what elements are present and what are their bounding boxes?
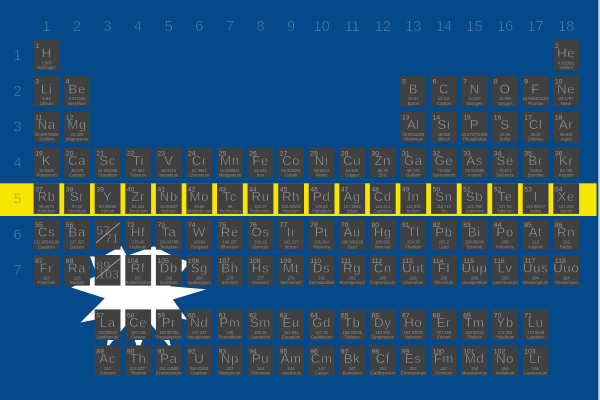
- svg-text:In: In: [407, 189, 419, 204]
- svg-text:Beryllium: Beryllium: [68, 101, 86, 106]
- svg-text:18: 18: [558, 19, 574, 35]
- svg-text:5: 5: [13, 192, 21, 208]
- svg-text:8: 8: [256, 19, 264, 35]
- svg-text:Ca: Ca: [68, 153, 86, 168]
- svg-text:Helium: Helium: [560, 65, 574, 70]
- svg-text:Cl: Cl: [529, 117, 543, 132]
- svg-text:Uup: Uup: [462, 261, 488, 276]
- svg-text:3: 3: [104, 19, 112, 35]
- svg-text:Nb: Nb: [160, 189, 178, 204]
- svg-text:Erbium: Erbium: [437, 335, 451, 340]
- svg-text:Barium: Barium: [70, 244, 84, 249]
- svg-text:Cn: Cn: [374, 261, 392, 276]
- svg-text:Chromium: Chromium: [189, 173, 209, 178]
- svg-text:No: No: [496, 351, 514, 366]
- svg-text:Roentgenium: Roentgenium: [339, 280, 365, 285]
- svg-text:Thallium: Thallium: [405, 244, 422, 249]
- svg-text:6: 6: [13, 227, 21, 243]
- svg-text:Scandium: Scandium: [98, 173, 118, 178]
- svg-text:Technetium: Technetium: [219, 209, 241, 214]
- svg-text:Rh: Rh: [282, 189, 300, 204]
- svg-text:Dysprosium: Dysprosium: [371, 335, 394, 340]
- svg-text:Cs: Cs: [38, 225, 55, 240]
- svg-text:5: 5: [165, 19, 173, 35]
- svg-text:Caesium: Caesium: [38, 244, 55, 249]
- svg-text:Sm: Sm: [250, 315, 271, 330]
- svg-text:Chlorine: Chlorine: [528, 137, 545, 142]
- svg-text:C: C: [439, 81, 449, 96]
- svg-text:Strontium: Strontium: [68, 209, 87, 214]
- svg-text:Np: Np: [221, 351, 239, 366]
- svg-text:Fm: Fm: [434, 351, 454, 366]
- svg-text:Bohrium: Bohrium: [222, 280, 238, 285]
- svg-text:Pb: Pb: [435, 225, 452, 240]
- svg-text:Tm: Tm: [464, 315, 484, 330]
- svg-text:Pd: Pd: [313, 189, 330, 204]
- svg-text:13: 13: [405, 19, 421, 35]
- svg-text:Radon: Radon: [560, 244, 573, 249]
- svg-text:15: 15: [466, 19, 482, 35]
- svg-text:Hs: Hs: [252, 261, 269, 276]
- svg-text:Uuo: Uuo: [553, 261, 579, 276]
- svg-text:Hg: Hg: [374, 225, 392, 240]
- svg-text:2: 2: [13, 84, 21, 100]
- svg-text:Lithium: Lithium: [40, 101, 54, 106]
- svg-text:Fe: Fe: [252, 153, 269, 168]
- svg-text:6: 6: [433, 79, 437, 86]
- svg-text:Cf: Cf: [376, 351, 390, 366]
- svg-text:Rg: Rg: [343, 261, 361, 276]
- svg-text:Terbium: Terbium: [345, 335, 361, 340]
- svg-text:Iridium: Iridium: [285, 244, 298, 249]
- svg-text:Oxygen: Oxygen: [498, 101, 513, 106]
- svg-text:O: O: [500, 81, 511, 96]
- svg-text:Fermium: Fermium: [435, 371, 452, 376]
- svg-text:Nd: Nd: [190, 315, 208, 330]
- svg-text:Gold: Gold: [348, 244, 358, 249]
- svg-text:Os: Os: [251, 225, 269, 240]
- svg-text:Nitrogen: Nitrogen: [466, 101, 483, 106]
- svg-text:11: 11: [345, 19, 360, 35]
- svg-text:Boron: Boron: [408, 101, 420, 106]
- svg-text:Potassium: Potassium: [36, 173, 56, 178]
- svg-text:Zinc: Zinc: [379, 173, 388, 178]
- svg-text:Arsenic: Arsenic: [467, 173, 482, 178]
- svg-text:Antimony: Antimony: [466, 209, 485, 214]
- svg-text:Ruthenium: Ruthenium: [250, 209, 271, 214]
- svg-text:Europium: Europium: [282, 335, 301, 340]
- svg-text:Berkelium: Berkelium: [343, 371, 363, 376]
- svg-text:Argon: Argon: [560, 137, 572, 142]
- svg-text:Te: Te: [498, 189, 513, 204]
- svg-text:Ra: Ra: [68, 261, 86, 276]
- svg-text:Rn: Rn: [557, 225, 575, 240]
- svg-text:Rf: Rf: [131, 261, 145, 276]
- svg-text:As: As: [466, 153, 483, 168]
- svg-text:Pa: Pa: [160, 351, 177, 366]
- svg-text:Pt: Pt: [315, 225, 329, 240]
- svg-text:5: 5: [402, 79, 406, 86]
- svg-text:Hydrogen: Hydrogen: [37, 65, 56, 70]
- svg-text:Bromine: Bromine: [528, 173, 545, 178]
- svg-text:Na: Na: [37, 117, 55, 132]
- svg-text:Californium: Californium: [370, 371, 396, 376]
- svg-text:Si: Si: [437, 117, 450, 132]
- svg-text:Pu: Pu: [252, 351, 269, 366]
- svg-text:Sg: Sg: [191, 261, 208, 276]
- svg-text:Rb: Rb: [37, 189, 55, 204]
- svg-text:Polonium: Polonium: [496, 244, 514, 249]
- svg-text:Br: Br: [528, 153, 542, 168]
- svg-text:Molybdenum: Molybdenum: [187, 209, 212, 214]
- svg-text:Mt: Mt: [283, 261, 299, 276]
- svg-text:Fl: Fl: [438, 261, 450, 276]
- svg-text:Praseodymium: Praseodymium: [156, 335, 182, 340]
- svg-text:Xenon: Xenon: [560, 209, 573, 214]
- svg-text:Ag: Ag: [344, 189, 361, 204]
- svg-text:Osmium: Osmium: [253, 244, 269, 249]
- svg-text:Neon: Neon: [561, 101, 572, 106]
- svg-text:7: 7: [463, 79, 467, 86]
- svg-text:Cu: Cu: [343, 153, 361, 168]
- svg-text:Tantalum: Tantalum: [160, 244, 178, 249]
- svg-text:Einsteinium: Einsteinium: [401, 371, 427, 376]
- svg-text:7: 7: [226, 19, 234, 35]
- svg-text:Pr: Pr: [162, 315, 176, 330]
- svg-text:Seaborgium: Seaborgium: [188, 280, 212, 285]
- svg-text:Aluminium: Aluminium: [403, 137, 423, 142]
- svg-text:Cd: Cd: [374, 189, 392, 204]
- svg-text:Dy: Dy: [374, 315, 391, 330]
- svg-text:Lr: Lr: [529, 351, 542, 366]
- svg-text:Se: Se: [496, 153, 513, 168]
- svg-text:H: H: [41, 45, 51, 60]
- svg-text:Tellurium: Tellurium: [496, 209, 514, 214]
- svg-text:Iron: Iron: [257, 173, 265, 178]
- svg-text:Zn: Zn: [375, 153, 392, 168]
- svg-text:1: 1: [42, 19, 50, 35]
- svg-text:Sn: Sn: [435, 189, 452, 204]
- svg-text:Mg: Mg: [67, 117, 87, 132]
- svg-text:Uus: Uus: [523, 261, 548, 276]
- svg-text:Holmium: Holmium: [405, 335, 422, 340]
- svg-text:S: S: [500, 117, 509, 132]
- svg-text:V: V: [164, 153, 173, 168]
- svg-text:Fr: Fr: [40, 261, 54, 276]
- svg-text:Ge: Ge: [435, 153, 454, 168]
- svg-text:Manganese: Manganese: [219, 173, 242, 178]
- svg-text:Ytterbium: Ytterbium: [496, 335, 515, 340]
- svg-text:Niobium: Niobium: [161, 209, 177, 214]
- svg-text:Tb: Tb: [344, 315, 361, 330]
- svg-text:Bk: Bk: [344, 351, 361, 366]
- svg-text:Protactinium: Protactinium: [156, 371, 182, 376]
- svg-text:Hafnium: Hafnium: [130, 244, 146, 249]
- svg-text:Ga: Ga: [404, 153, 423, 168]
- svg-text:Cadmium: Cadmium: [374, 209, 393, 214]
- svg-text:Promethium: Promethium: [218, 335, 242, 340]
- svg-text:Rhenium: Rhenium: [221, 244, 239, 249]
- svg-text:Kr: Kr: [559, 153, 573, 168]
- svg-text:9: 9: [287, 19, 295, 35]
- svg-text:W: W: [193, 225, 206, 240]
- svg-text:Ce: Ce: [129, 315, 147, 330]
- svg-text:Ac: Ac: [99, 351, 116, 366]
- svg-text:I: I: [533, 189, 537, 204]
- svg-text:P: P: [470, 117, 479, 132]
- svg-text:4: 4: [134, 19, 142, 35]
- svg-text:12: 12: [375, 19, 391, 35]
- svg-text:53: 53: [524, 186, 532, 193]
- svg-text:Tungsten: Tungsten: [190, 244, 208, 249]
- svg-text:Hf: Hf: [131, 225, 145, 240]
- svg-text:Dubnium: Dubnium: [160, 280, 178, 285]
- svg-text:Cm: Cm: [311, 351, 333, 366]
- svg-text:Tin: Tin: [441, 209, 447, 214]
- svg-text:Am: Am: [281, 351, 302, 366]
- svg-text:Ununpentium: Ununpentium: [462, 280, 488, 285]
- svg-text:Bi: Bi: [468, 225, 481, 240]
- svg-text:Lu: Lu: [528, 315, 544, 330]
- svg-text:Ru: Ru: [251, 189, 269, 204]
- svg-text:6: 6: [195, 19, 203, 35]
- svg-text:Sodium: Sodium: [39, 137, 54, 142]
- svg-text:Darmstadtium: Darmstadtium: [309, 280, 335, 285]
- svg-text:Hassium: Hassium: [252, 280, 269, 285]
- svg-text:Astatine: Astatine: [528, 244, 544, 249]
- svg-text:Lead: Lead: [439, 244, 449, 249]
- svg-text:Db: Db: [160, 261, 178, 276]
- svg-text:Mo: Mo: [190, 189, 210, 204]
- svg-text:Lawrencium: Lawrencium: [524, 371, 548, 376]
- svg-text:Samarium: Samarium: [251, 335, 271, 340]
- svg-text:Silicon: Silicon: [438, 137, 451, 142]
- svg-text:7: 7: [13, 263, 21, 279]
- svg-text:Flerovium: Flerovium: [434, 280, 453, 285]
- svg-text:Co: Co: [282, 153, 300, 168]
- svg-text:3: 3: [13, 120, 21, 136]
- svg-text:Neptunium: Neptunium: [220, 371, 241, 376]
- svg-text:N: N: [469, 81, 479, 96]
- svg-text:2: 2: [73, 19, 81, 35]
- svg-text:Tl: Tl: [407, 225, 419, 240]
- svg-text:Gallium: Gallium: [406, 173, 421, 178]
- svg-text:Francium: Francium: [38, 280, 56, 285]
- svg-text:At: At: [529, 225, 543, 240]
- svg-text:Mendelevium: Mendelevium: [462, 371, 488, 376]
- svg-text:Nobelium: Nobelium: [496, 371, 515, 376]
- svg-text:Ds: Ds: [313, 261, 330, 276]
- svg-text:Mn: Mn: [220, 153, 240, 168]
- svg-text:F: F: [531, 81, 540, 96]
- svg-text:Bismuth: Bismuth: [467, 244, 483, 249]
- svg-text:Ne: Ne: [557, 81, 575, 96]
- svg-text:Thulium: Thulium: [467, 335, 483, 340]
- svg-text:Calcium: Calcium: [69, 173, 85, 178]
- svg-text:Titanium: Titanium: [130, 173, 147, 178]
- svg-text:Th: Th: [130, 351, 147, 366]
- svg-text:Cobalt: Cobalt: [285, 173, 298, 178]
- svg-text:Cerium: Cerium: [131, 335, 145, 340]
- svg-text:Thorium: Thorium: [130, 371, 146, 376]
- svg-text:Rhodium: Rhodium: [282, 209, 300, 214]
- svg-text:Uut: Uut: [402, 261, 424, 276]
- svg-text:Er: Er: [437, 315, 451, 330]
- svg-text:Platinum: Platinum: [313, 244, 330, 249]
- svg-text:Copernicium: Copernicium: [370, 280, 396, 285]
- svg-text:Lutetium: Lutetium: [527, 335, 544, 340]
- svg-text:Iodine: Iodine: [530, 209, 542, 214]
- svg-text:Sulfur: Sulfur: [499, 137, 511, 142]
- svg-text:Indium: Indium: [407, 209, 420, 214]
- svg-text:Ta: Ta: [161, 225, 176, 240]
- svg-text:U: U: [194, 351, 204, 366]
- svg-text:K: K: [42, 153, 51, 168]
- svg-text:Yb: Yb: [496, 315, 513, 330]
- svg-text:B: B: [409, 81, 418, 96]
- svg-text:Gadolinium: Gadolinium: [311, 335, 333, 340]
- svg-text:3: 3: [35, 79, 39, 86]
- svg-text:La: La: [100, 315, 116, 330]
- svg-text:17: 17: [528, 19, 544, 35]
- svg-text:Y: Y: [103, 189, 112, 204]
- svg-text:Neodymium: Neodymium: [188, 335, 211, 340]
- svg-text:Phosphorus: Phosphorus: [463, 137, 486, 142]
- svg-text:8: 8: [494, 79, 498, 86]
- svg-text:Rutherfordium: Rutherfordium: [125, 280, 151, 285]
- svg-text:Ununseptium: Ununseptium: [523, 280, 549, 285]
- svg-text:Vanadium: Vanadium: [159, 173, 178, 178]
- svg-text:Gd: Gd: [312, 315, 331, 330]
- svg-text:Carbon: Carbon: [437, 101, 452, 106]
- svg-text:Al: Al: [407, 117, 420, 132]
- svg-text:Eu: Eu: [282, 315, 299, 330]
- svg-text:Palladium: Palladium: [312, 209, 331, 214]
- svg-text:Meitnerium: Meitnerium: [280, 280, 302, 285]
- svg-text:Re: Re: [221, 225, 239, 240]
- svg-text:Silver: Silver: [347, 209, 358, 214]
- svg-text:Ba: Ba: [68, 225, 85, 240]
- svg-text:1: 1: [13, 48, 21, 64]
- svg-text:Xe: Xe: [558, 189, 575, 204]
- svg-text:Be: Be: [68, 81, 85, 96]
- svg-text:He: He: [557, 45, 575, 60]
- svg-text:Radium: Radium: [70, 280, 85, 285]
- svg-text:Zirconium: Zirconium: [129, 209, 148, 214]
- svg-text:Rubidium: Rubidium: [37, 209, 56, 214]
- svg-text:Ununoctium: Ununoctium: [555, 280, 578, 285]
- svg-text:Zr: Zr: [131, 189, 145, 204]
- svg-text:16: 16: [497, 19, 513, 35]
- svg-text:Ir: Ir: [286, 225, 295, 240]
- svg-text:Md: Md: [465, 351, 485, 366]
- svg-text:Ar: Ar: [559, 117, 573, 132]
- svg-text:Pm: Pm: [219, 315, 240, 330]
- svg-text:10: 10: [314, 19, 330, 35]
- svg-text:Po: Po: [496, 225, 513, 240]
- svg-text:Americium: Americium: [281, 371, 302, 376]
- svg-text:Lanthanum: Lanthanum: [97, 335, 119, 340]
- svg-text:9: 9: [524, 79, 528, 86]
- svg-text:Tc: Tc: [223, 189, 237, 204]
- svg-text:Mercury: Mercury: [375, 244, 391, 249]
- svg-text:Actinium: Actinium: [99, 371, 116, 376]
- svg-text:Curium: Curium: [315, 371, 329, 376]
- svg-text:Ni: Ni: [315, 153, 329, 168]
- svg-text:Uranium: Uranium: [191, 371, 208, 376]
- svg-text:Cr: Cr: [192, 153, 207, 168]
- svg-text:Magnesium: Magnesium: [66, 137, 89, 142]
- svg-text:Fluorine: Fluorine: [528, 101, 544, 106]
- svg-text:Livermorium: Livermorium: [492, 280, 518, 285]
- svg-text:14: 14: [436, 19, 452, 35]
- svg-text:4: 4: [13, 156, 21, 172]
- svg-text:Au: Au: [344, 225, 361, 240]
- svg-text:Li: Li: [41, 81, 52, 96]
- svg-text:Bh: Bh: [221, 261, 238, 276]
- svg-text:Ho: Ho: [404, 315, 422, 330]
- svg-text:Sr: Sr: [70, 189, 84, 204]
- svg-text:Lv: Lv: [498, 261, 513, 276]
- svg-text:Sb: Sb: [466, 189, 483, 204]
- svg-text:Selenium: Selenium: [496, 173, 514, 178]
- svg-text:Ununtrium: Ununtrium: [403, 280, 423, 285]
- svg-text:Ti: Ti: [132, 153, 144, 168]
- svg-text:Germanium: Germanium: [433, 173, 456, 178]
- svg-text:Copper: Copper: [345, 173, 360, 178]
- svg-text:Krypton: Krypton: [559, 173, 574, 178]
- svg-text:Yttrium: Yttrium: [101, 209, 115, 214]
- svg-text:1: 1: [35, 43, 39, 50]
- svg-text:Nickel: Nickel: [316, 173, 328, 178]
- svg-text:Plutonium: Plutonium: [251, 371, 271, 376]
- svg-text:Es: Es: [405, 351, 422, 366]
- svg-text:Sc: Sc: [99, 153, 116, 168]
